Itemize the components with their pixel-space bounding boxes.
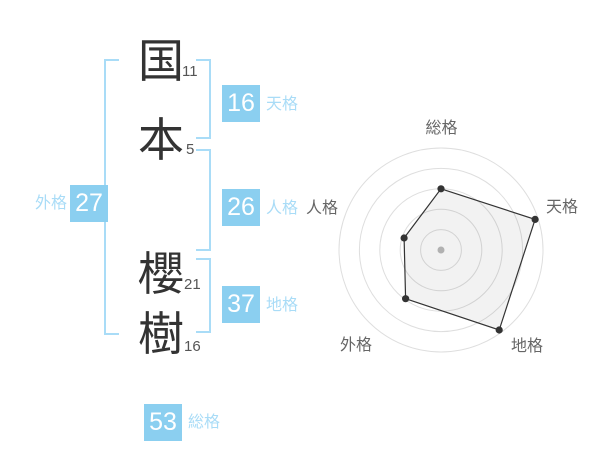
radar-axis-label: 総格: [425, 119, 457, 137]
stroke-count-2: 5: [186, 142, 194, 157]
radar-chart-svg: 総格天格地格外格人格: [291, 100, 591, 400]
radar-data-point: [437, 185, 444, 192]
gaikaku-value-badge: 27: [70, 185, 108, 222]
chikaku-value-badge: 37: [222, 286, 260, 323]
radar-axis-label: 天格: [546, 198, 578, 216]
name-char-3: 櫻: [138, 251, 184, 297]
radar-data-point: [401, 234, 408, 241]
gaikaku-label: 外格: [33, 196, 67, 212]
jinkaku-value-badge: 26: [222, 189, 260, 226]
chikaku-bracket: [196, 258, 211, 333]
name-fortune-result: 国 11 本 5 櫻 21 樹 16 16 天格 26 人格 37 地格 外格 …: [0, 0, 600, 470]
stroke-count-4: 16: [184, 339, 201, 354]
soukaku-value-badge: 53: [144, 404, 182, 441]
radar-axis-label: 外格: [340, 336, 372, 354]
name-char-2: 本: [138, 117, 184, 163]
stroke-count-1: 11: [182, 64, 198, 79]
soukaku-label: 総格: [188, 415, 220, 431]
radar-data-point: [496, 326, 503, 333]
name-char-1: 国: [138, 38, 184, 84]
tenkaku-value-badge: 16: [222, 85, 260, 122]
name-char-4: 樹: [138, 311, 184, 357]
radar-chart: 総格天格地格外格人格: [291, 100, 591, 400]
radar-axis-label: 地格: [511, 337, 543, 355]
tenkaku-bracket: [196, 59, 211, 139]
radar-data-point: [402, 295, 409, 302]
jinkaku-bracket: [196, 149, 211, 251]
radar-data-point: [532, 216, 539, 223]
stroke-count-3: 21: [184, 277, 201, 292]
radar-axis-label: 人格: [306, 199, 338, 217]
